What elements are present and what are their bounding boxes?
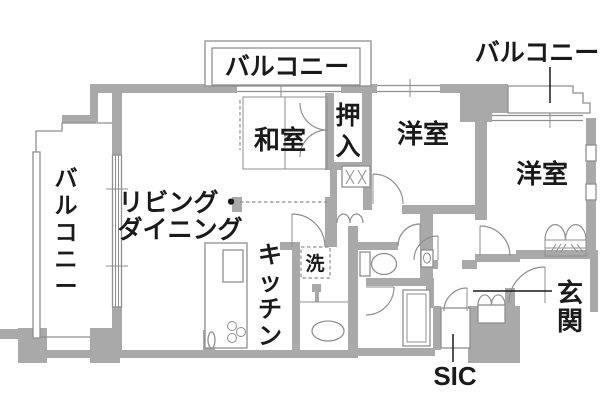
living-dining-label-line2: ダイニング bbox=[117, 215, 242, 244]
balcony-right bbox=[508, 86, 590, 113]
balcony-top-label: バルコニー bbox=[225, 53, 350, 81]
japanese-room-label: 和室 bbox=[254, 125, 306, 155]
western-room-center-label: 洋室 bbox=[397, 119, 449, 149]
laundry-label: 洗 bbox=[305, 252, 324, 275]
living-dining-label-line1: リビング・ bbox=[118, 189, 243, 217]
balcony-left-label: バルコニー bbox=[55, 165, 78, 299]
kitchen-counter bbox=[205, 243, 247, 348]
kitchen-label: キッチン bbox=[258, 242, 282, 350]
balcony-right-label: バルコニー bbox=[475, 39, 600, 67]
floorplan-svg: バルコニー バルコニー バルコニー 和室 押入 洋室 洋室 リビング・ ダイニン… bbox=[0, 0, 600, 417]
futon-closet-label: 押入 bbox=[335, 102, 360, 161]
western-room-right-label: 洋室 bbox=[516, 159, 568, 189]
washroom-cabinet bbox=[403, 290, 430, 346]
entrance-label: 玄関 bbox=[557, 278, 583, 336]
sic-label: SIC bbox=[433, 361, 477, 391]
floorplan-page: バルコニー バルコニー バルコニー 和室 押入 洋室 洋室 リビング・ ダイニン… bbox=[0, 0, 600, 417]
